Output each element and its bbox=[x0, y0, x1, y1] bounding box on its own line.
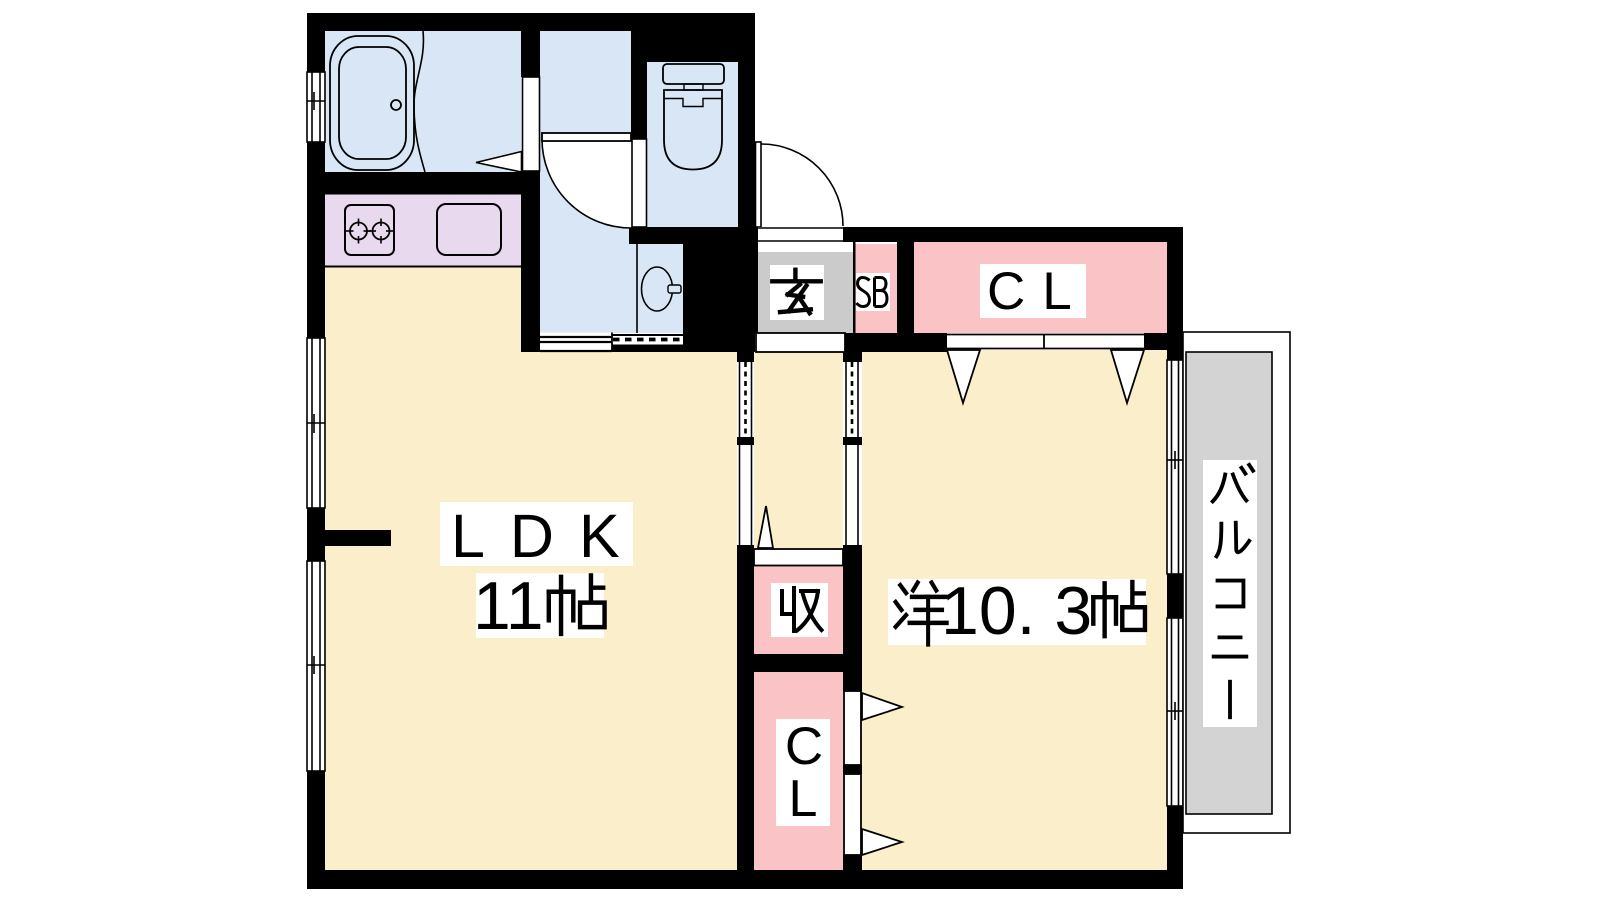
svg-text:L: L bbox=[789, 770, 818, 828]
svg-text:LDK: LDK bbox=[451, 502, 645, 570]
svg-text:11: 11 bbox=[473, 568, 544, 644]
svg-text:C: C bbox=[785, 717, 823, 776]
svg-text:CL: CL bbox=[987, 262, 1089, 321]
svg-text:10. 3: 10. 3 bbox=[941, 573, 1092, 649]
